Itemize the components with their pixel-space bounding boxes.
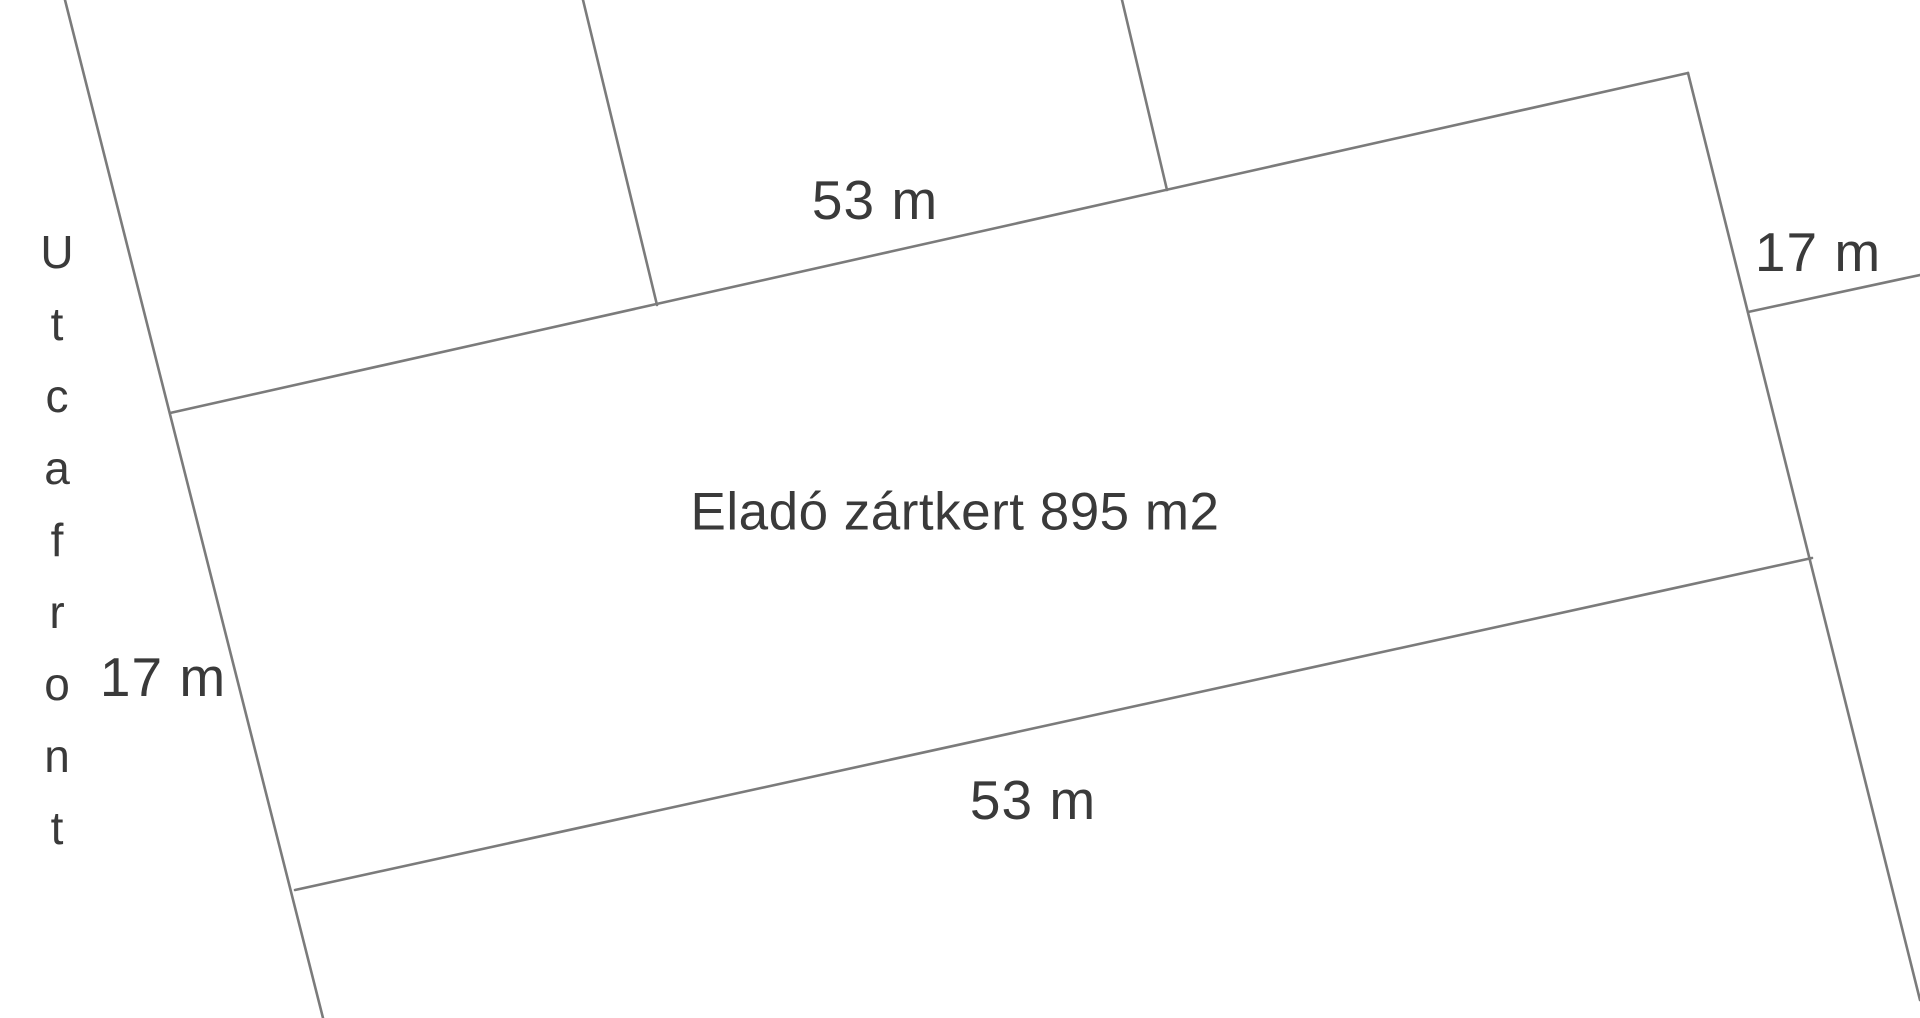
plot-right-edge bbox=[1688, 73, 1920, 1000]
plot-title-label: Eladó zártkert 895 m2 bbox=[691, 482, 1220, 543]
dimension-label-left: 17 m bbox=[100, 645, 226, 709]
dimension-label-right: 17 m bbox=[1755, 220, 1881, 284]
plot-bottom-edge bbox=[295, 558, 1812, 890]
dimension-label-top: 53 m bbox=[812, 168, 938, 232]
parcel-diagram: U t c a f r o n t 53 m 17 m 17 m 53 m El… bbox=[0, 0, 1920, 1018]
plot-top-edge bbox=[170, 73, 1688, 413]
neighbor-boundary-top-mid bbox=[1122, 0, 1167, 190]
street-front-label: U t c a f r o n t bbox=[40, 216, 73, 864]
neighbor-boundary-top-left bbox=[583, 0, 657, 305]
street-boundary-line bbox=[65, 0, 323, 1018]
dimension-label-bottom: 53 m bbox=[970, 768, 1096, 832]
